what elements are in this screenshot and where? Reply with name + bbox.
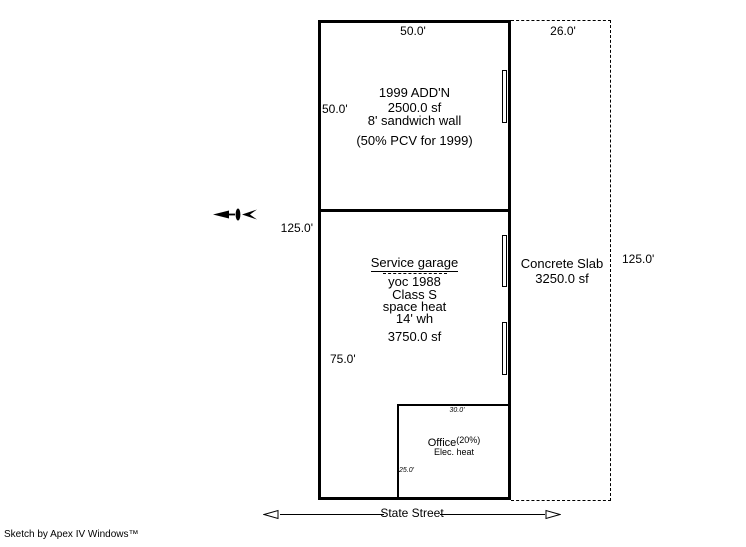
property-sketch-canvas: 50.0' 26.0' 50.0' 125.0' 75.0' 125.0' 19… [0,0,746,547]
addition-name: 1999 ADD'N [321,86,508,100]
slab-top-dimension: 26.0' [543,25,583,38]
north-arrow-icon [212,206,258,223]
addition-wall-note: 8' sandwich wall [321,114,508,128]
addition-pcv-note: (50% PCV for 1999) [321,134,508,148]
garage-total-left-dimension: 125.0' [266,222,313,235]
office-pct: (20%) [456,435,480,445]
garage-wall-height: 14' wh [321,312,508,326]
office-left-dimension: 25.0' [399,467,414,475]
office-top-dimension: 30.0' [437,407,477,415]
addition-top-dimension: 50.0' [393,25,433,38]
slab-right-dimension: 125.0' [622,253,654,266]
garage-left-dimension: 75.0' [330,353,356,366]
slab-name: Concrete Slab [513,257,611,271]
garage-area: 3750.0 sf [321,330,508,344]
garage-name: Service garage [321,254,508,274]
street-arrow-line-right [440,514,545,515]
addition-garage-divider [318,209,511,212]
garage-name-text: Service garage [371,255,458,272]
office-heat: Elec. heat [397,447,511,457]
slab-area: 3250.0 sf [513,272,611,286]
street-arrowhead-right [543,509,561,520]
sketch-credit: Sketch by Apex IV Windows™ [4,529,139,540]
street-arrowhead-left [263,509,281,520]
